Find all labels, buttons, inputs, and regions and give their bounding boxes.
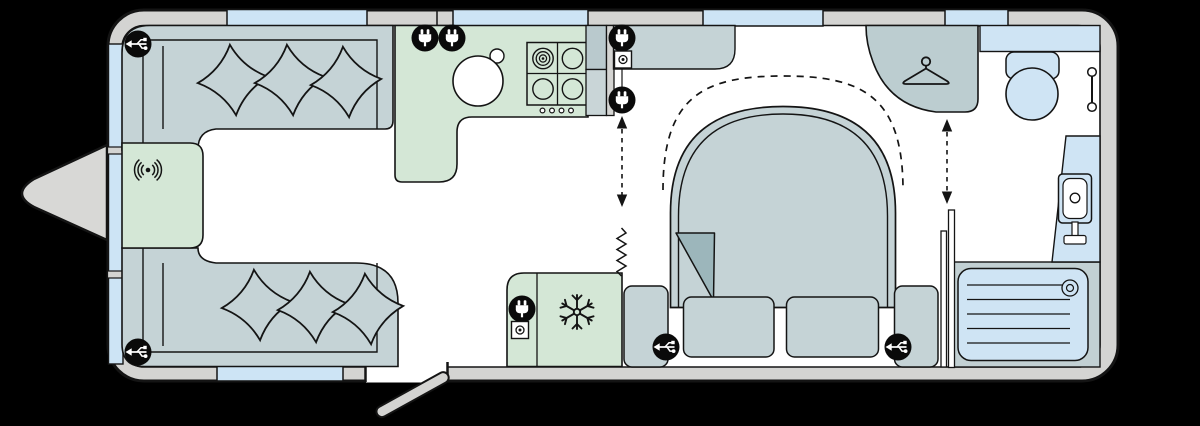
- top-window-1: [227, 10, 367, 27]
- mains-socket-icon: [609, 25, 636, 52]
- toilet-bowl: [1006, 68, 1058, 120]
- washroom-shelf: [980, 26, 1100, 52]
- front-window: [109, 44, 124, 364]
- shower: [958, 269, 1088, 361]
- usb-socket-icon: [125, 31, 152, 58]
- usb-socket-icon: [653, 334, 680, 361]
- usb-socket-icon: [885, 334, 912, 361]
- bed-drawer-right: [787, 297, 879, 357]
- tv-aerial-socket-icon: [615, 51, 632, 68]
- front-window-divider-1: [108, 147, 124, 154]
- tall-cupboard-upper: [586, 26, 607, 70]
- mains-socket-icon: [609, 87, 636, 114]
- top-window-2: [453, 10, 588, 27]
- front-chest: [122, 143, 203, 248]
- floorplan-drawing: [0, 0, 1200, 426]
- caravan-floorplan-canvas: [0, 0, 1200, 426]
- tall-cupboard-lower: [586, 70, 607, 116]
- hob: [527, 43, 588, 113]
- mains-socket-icon: [412, 25, 439, 52]
- front-window-divider-2: [108, 271, 124, 278]
- shower-drain-icon: [1062, 280, 1078, 296]
- toilet: [1006, 52, 1059, 120]
- sliding-door-leaf: [941, 231, 947, 367]
- usb-socket-icon: [125, 339, 152, 366]
- top-window-3: [703, 10, 823, 27]
- mains-socket-icon: [439, 25, 466, 52]
- top-window-4: [945, 10, 1008, 27]
- tv-aerial-socket-icon: [512, 322, 529, 339]
- bottom-window: [217, 365, 343, 381]
- entry-door: [366, 362, 451, 420]
- bed-drawer-left: [684, 297, 775, 357]
- partition-wall-stub: [949, 210, 955, 368]
- mains-socket-icon: [509, 296, 536, 323]
- basin-tap: [1072, 222, 1078, 237]
- a-frame-hitch: [22, 145, 107, 240]
